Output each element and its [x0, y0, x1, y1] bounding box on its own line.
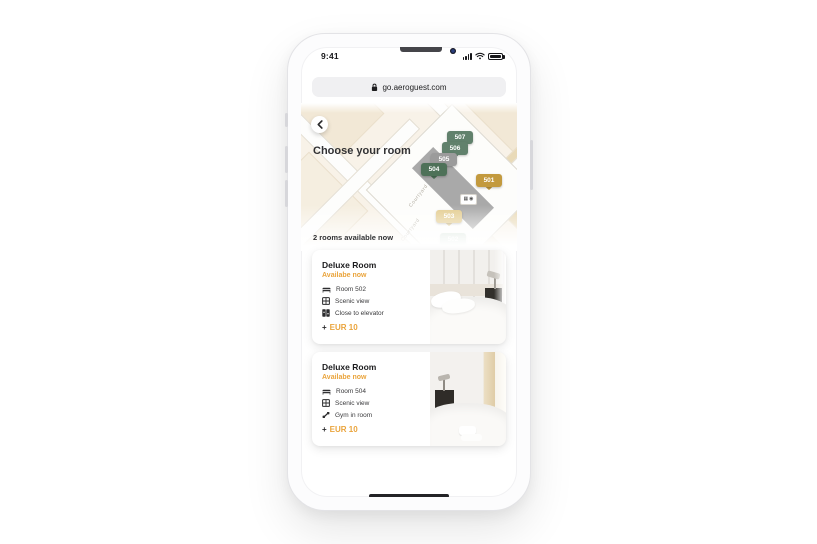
elevator-map-icon: ▦◉	[460, 194, 477, 205]
feature-label: Room 504	[336, 388, 366, 395]
lock-icon	[371, 83, 378, 92]
room-price: +EUR 10	[322, 323, 358, 332]
status-time: 9:41	[321, 51, 339, 61]
price-amount: EUR 10	[330, 425, 358, 434]
feature-row: Scenic view	[322, 297, 384, 305]
feature-label: Scenic view	[335, 400, 369, 407]
status-icons	[463, 52, 503, 60]
price-plus-sign: +	[322, 323, 327, 332]
page-title: Choose your room	[313, 145, 411, 157]
feature-label: Scenic view	[335, 298, 369, 305]
feature-row: Scenic view	[322, 399, 372, 407]
battery-icon	[488, 53, 503, 61]
map-bottom-fade	[301, 205, 517, 251]
map-pin-501[interactable]: 501	[476, 174, 502, 187]
power-button	[530, 140, 533, 190]
wifi-icon	[475, 52, 485, 60]
room-title: Deluxe Room	[322, 362, 376, 372]
bed-icon	[322, 286, 331, 293]
phone-frame: 9:41 go.aeroguest.com	[287, 33, 531, 511]
signal-icon	[463, 53, 472, 60]
home-indicator[interactable]	[369, 494, 449, 497]
room-photo	[430, 352, 506, 446]
gym-icon	[322, 411, 330, 419]
price-plus-sign: +	[322, 425, 327, 434]
speaker-grille	[400, 47, 442, 52]
url-text: go.aeroguest.com	[382, 83, 446, 92]
room-photo	[430, 250, 506, 344]
photo-towel	[461, 434, 482, 442]
front-camera	[450, 48, 456, 54]
room-status: Availabe now	[322, 374, 366, 381]
floorplan-map: ▦◉ Courtyard Courtyard 507 506 505	[301, 103, 517, 251]
price-amount: EUR 10	[330, 323, 358, 332]
volume-down-button	[285, 180, 288, 207]
map-pin-504[interactable]: 504	[421, 163, 447, 176]
elevator-icon	[322, 309, 330, 317]
page-background: 9:41 go.aeroguest.com	[0, 0, 817, 544]
bed-icon	[322, 388, 331, 395]
phone-screen: 9:41 go.aeroguest.com	[301, 47, 517, 497]
back-button[interactable]	[311, 116, 328, 133]
feature-row: Room 502	[322, 285, 384, 293]
window-icon	[322, 399, 330, 407]
mute-switch	[285, 113, 288, 127]
feature-row: Close to elevator	[322, 309, 384, 317]
map-top-fade	[301, 103, 517, 113]
browser-url-bar[interactable]: go.aeroguest.com	[312, 77, 506, 97]
room-title: Deluxe Room	[322, 260, 376, 270]
feature-label: Gym in room	[335, 412, 372, 419]
room-status: Availabe now	[322, 272, 366, 279]
pin-label: 501	[476, 174, 502, 187]
pin-label: 504	[421, 163, 447, 176]
room-features: Room 502 Scenic view	[322, 285, 384, 317]
room-price: +EUR 10	[322, 425, 358, 434]
feature-row: Room 504	[322, 387, 372, 395]
room-card-502[interactable]: Deluxe Room Availabe now Room 502	[312, 250, 506, 344]
feature-label: Room 502	[336, 286, 366, 293]
room-features: Room 504 Scenic view	[322, 387, 372, 419]
chevron-left-icon	[317, 120, 323, 129]
availability-summary: 2 rooms available now	[313, 233, 393, 242]
room-card-504[interactable]: Deluxe Room Availabe now Room 504	[312, 352, 506, 446]
volume-up-button	[285, 146, 288, 173]
feature-row: Gym in room	[322, 411, 372, 419]
feature-label: Close to elevator	[335, 310, 384, 317]
window-icon	[322, 297, 330, 305]
